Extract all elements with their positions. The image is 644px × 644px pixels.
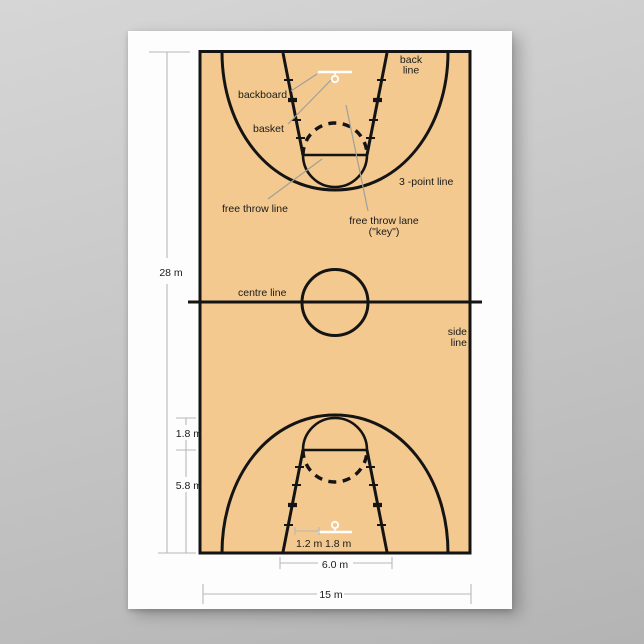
page-background: back line backboard basket 3 -point line… — [0, 0, 644, 644]
backboard-width-label: 1.8 m — [325, 538, 352, 550]
court-length-label: 28 m — [159, 267, 183, 279]
centre-line-label: centre line — [238, 287, 287, 299]
lane-base-width-label: 6.0 m — [322, 559, 349, 571]
backboard-offset-label: 1.2 m — [296, 538, 323, 550]
basket-label: basket — [253, 123, 284, 135]
circle-radius-label: 1.8 m — [176, 428, 203, 440]
back-line-label-2: line — [403, 65, 420, 77]
free-throw-line-label: free throw line — [222, 203, 288, 215]
court-width-label: 15 m — [319, 589, 343, 601]
three-point-line-label: 3 -point line — [399, 176, 453, 188]
free-throw-distance-label: 5.8 m — [176, 480, 203, 492]
side-line-label-2: line — [451, 337, 468, 349]
backboard-label: backboard — [238, 89, 287, 101]
dimension-line-28m — [149, 52, 190, 553]
free-throw-lane-label-2: ("key") — [369, 226, 400, 238]
court-diagram: back line backboard basket 3 -point line… — [0, 0, 644, 644]
